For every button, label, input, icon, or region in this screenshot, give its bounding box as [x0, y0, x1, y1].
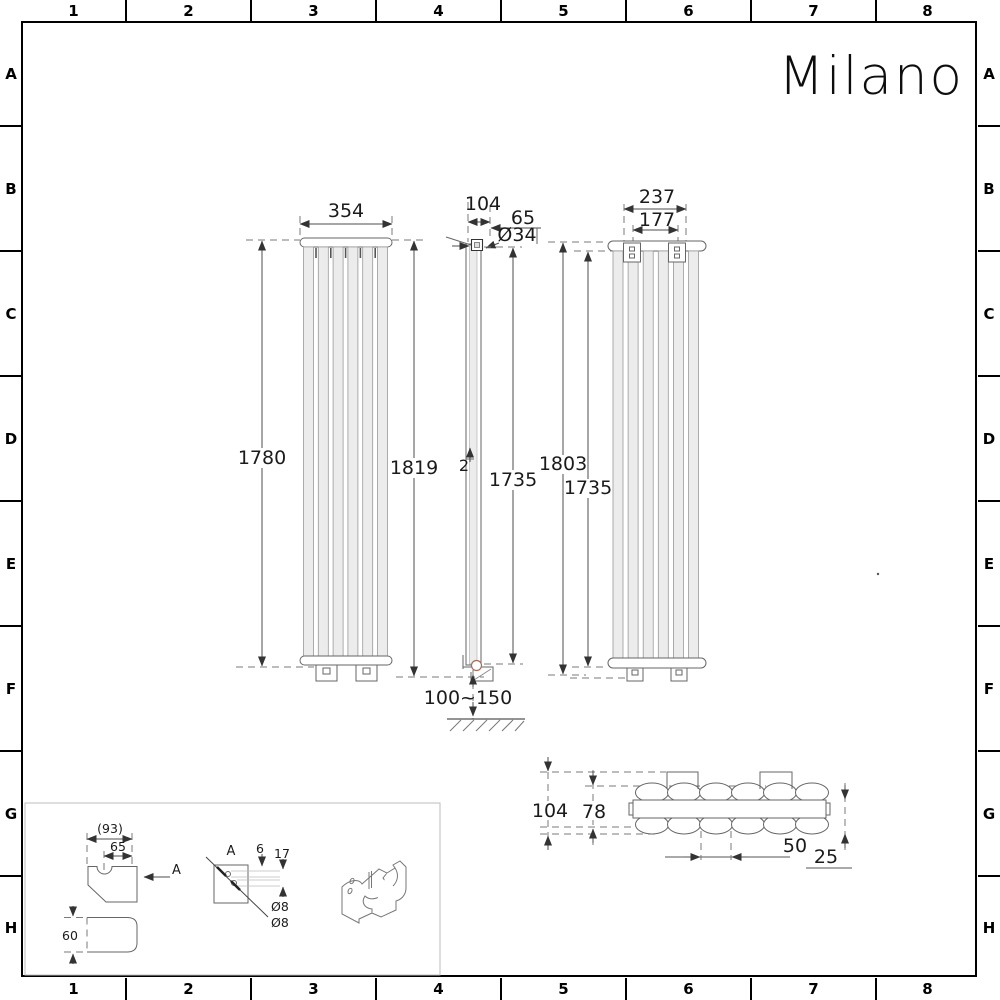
bracket-side-view [88, 867, 137, 903]
bracket-bottom-view [87, 918, 137, 953]
drawing-sheet: 1 2 3 4 5 6 7 8 1 2 3 4 5 6 7 8 A B C D … [0, 0, 1000, 1000]
dim-floor-clearance: 100~150 [424, 687, 512, 709]
manifold-bar [633, 800, 826, 818]
section-arrow-label: A [172, 863, 181, 878]
dim-rear-column-height: 1735 [564, 477, 612, 499]
bracket-detail-panel: (93) 65 A 60 A 6 17 [25, 803, 440, 975]
dim-hole-diameter-2: Ø8 [271, 915, 289, 930]
dim-side-height: 1735 [489, 469, 537, 491]
section-label: A [227, 844, 236, 859]
dim-manifold-height: 25 [814, 846, 838, 868]
dim-pipe-diameter: Ø34 [497, 224, 536, 246]
dim-bracket-inner: 177 [639, 209, 675, 231]
front-view: 354 1780 1 [236, 200, 484, 681]
dim-hole-offset: 6 [256, 841, 264, 856]
stray-mark [877, 573, 879, 575]
dim-section-depth: 104 [532, 800, 568, 822]
foot-bracket [356, 665, 377, 681]
wall-bracket [624, 243, 641, 262]
bracket-3d-view [342, 861, 406, 923]
dim-front-height-right: 1819 [390, 457, 438, 479]
side-view: 104 65 Ø34 2 1735 [424, 193, 541, 731]
dim-bracket-offset: 65 [110, 839, 126, 854]
wall-bracket [669, 243, 686, 262]
dim-bracket-width-ref: (93) [97, 821, 123, 836]
dim-front-width: 354 [328, 200, 364, 222]
dim-panel-spacing: 78 [582, 801, 606, 823]
dim-rear-height: 1803 [539, 453, 587, 475]
dim-column-pitch: 50 [783, 835, 807, 857]
dim-hole-diameter-1: Ø8 [271, 899, 289, 914]
foot-bracket [316, 665, 337, 681]
dim-hole-spacing: 17 [274, 846, 290, 861]
dim-front-height-left: 1780 [238, 447, 286, 469]
technical-drawing: 354 1780 1 [0, 0, 1000, 1000]
rear-view: 237 177 180 [539, 186, 706, 681]
dim-bracket-outer: 237 [639, 186, 675, 208]
pipe-outlet [472, 661, 482, 671]
section-detail: 104 78 25 50 [532, 757, 852, 868]
dim-bracket-height: 60 [62, 928, 78, 943]
dim-side-depth: 104 [465, 193, 501, 215]
